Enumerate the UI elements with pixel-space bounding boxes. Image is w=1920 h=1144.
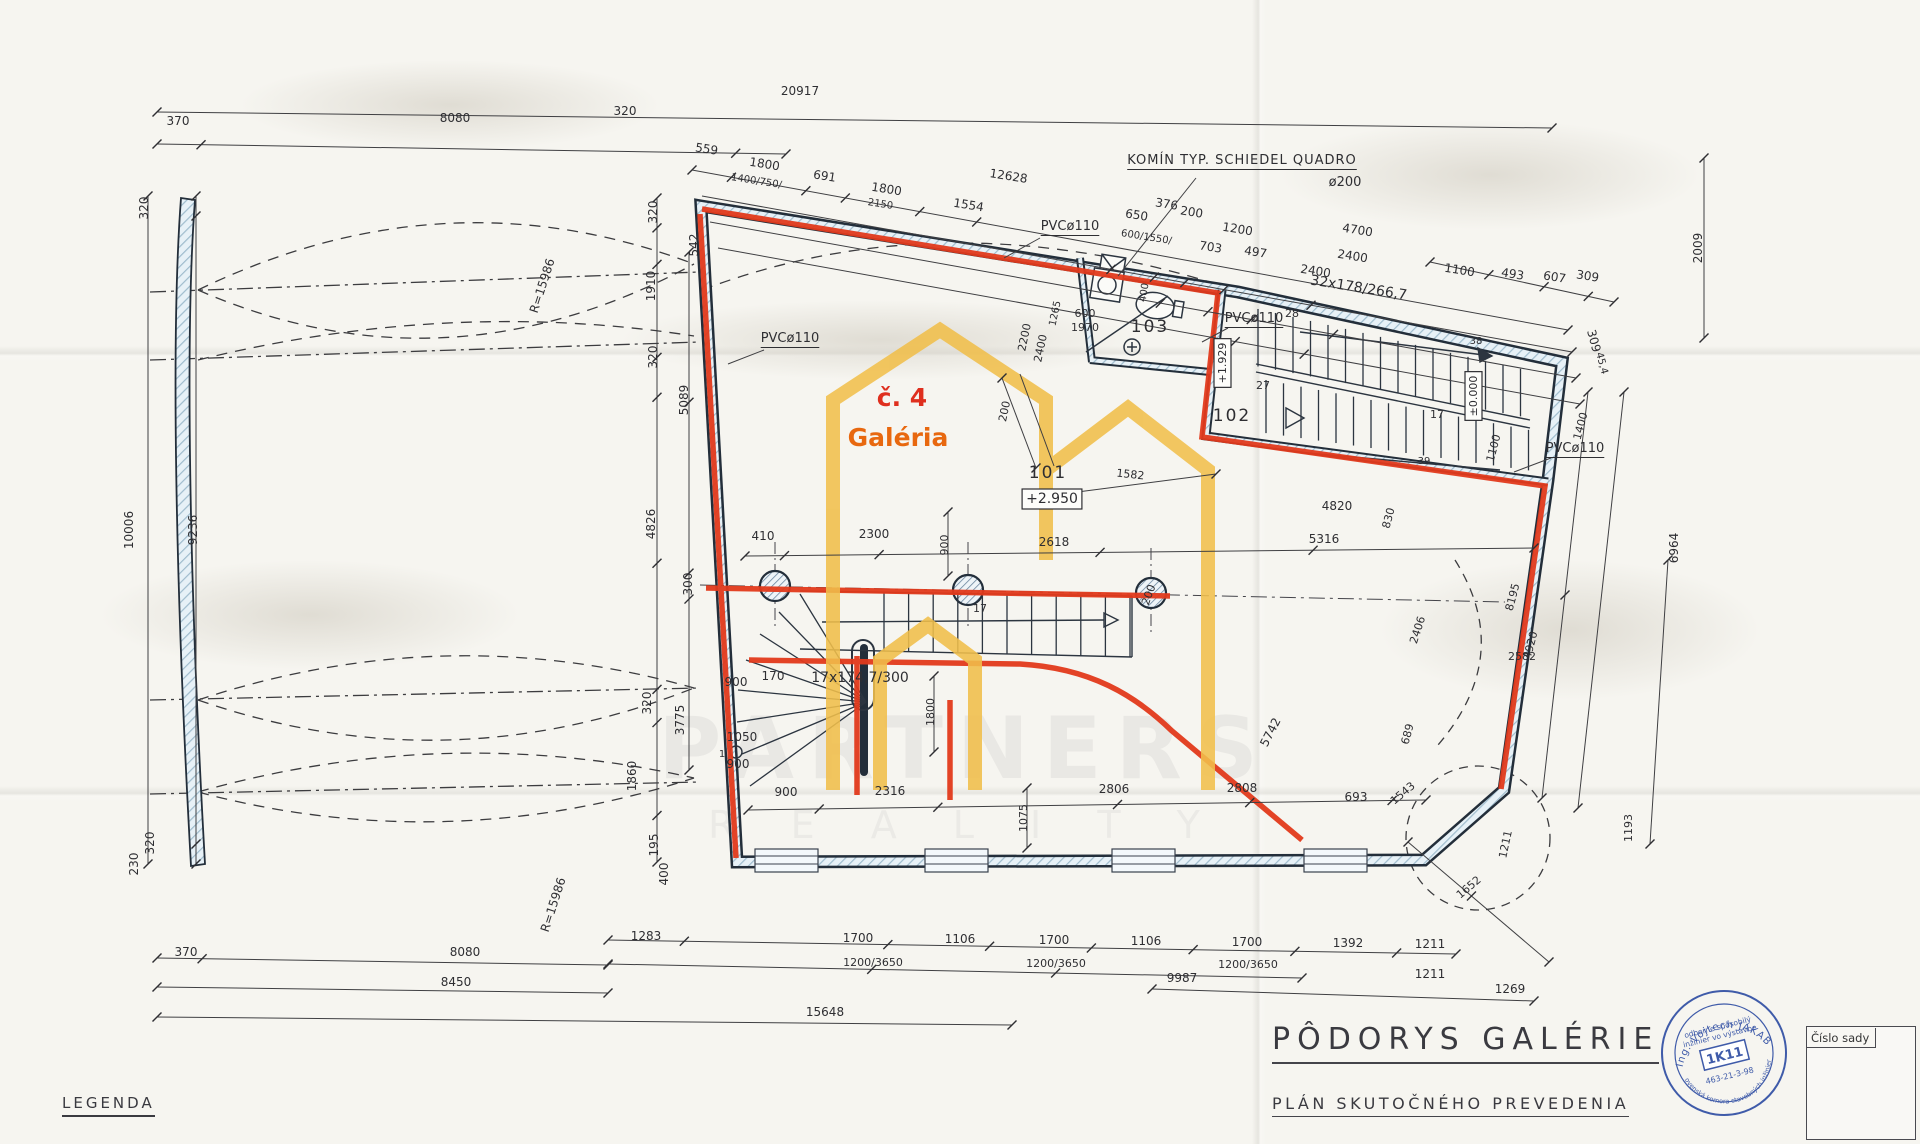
dim-label: 320 bbox=[646, 346, 660, 369]
drawing-sheet: PARTNERS R E A L I T Y bbox=[0, 0, 1920, 1144]
dim-label: 230 bbox=[127, 853, 141, 876]
stair-lower-annotation: 17x174,7/300 bbox=[811, 670, 909, 686]
dim-label: 1211 bbox=[1415, 967, 1446, 981]
dim-label: 1200/3650 bbox=[1026, 957, 1086, 970]
dim-label: 607 bbox=[1542, 268, 1567, 285]
dim-tick bbox=[972, 218, 981, 227]
window bbox=[1112, 849, 1175, 872]
dim-label: 1652 bbox=[1454, 873, 1484, 901]
dim-label: 900 bbox=[725, 675, 748, 689]
dim-label: 410 bbox=[752, 529, 775, 543]
dim-label: 1582 bbox=[1116, 467, 1145, 483]
dim-label: 2618 bbox=[1039, 535, 1070, 549]
dim-tick bbox=[801, 186, 810, 195]
engineer-stamp: Ing. Vojtech JAKAB Slovenská komora stav… bbox=[1649, 978, 1799, 1128]
dim-label: 693 bbox=[1345, 790, 1368, 804]
dim-label: 1211 bbox=[1415, 937, 1446, 951]
dim-label: 370 bbox=[175, 945, 198, 959]
dim-label: 1392 bbox=[1333, 936, 1364, 950]
dim-label: 2406 bbox=[1407, 615, 1428, 646]
dim-tick bbox=[1300, 350, 1309, 359]
dim-label: R=15986 bbox=[527, 257, 558, 315]
dim-label: 400 bbox=[657, 863, 671, 886]
dim-label: 9987 bbox=[1167, 971, 1198, 985]
dim-tick bbox=[1426, 258, 1435, 267]
dim-label: 2316 bbox=[875, 784, 906, 798]
dim-label: 1100 bbox=[1443, 261, 1475, 280]
window bbox=[1304, 849, 1367, 872]
dim-label: 320 bbox=[143, 832, 157, 855]
dim-label: 559 bbox=[694, 140, 719, 157]
pipe-annotation: PVCø110 bbox=[1546, 441, 1605, 456]
dim-line bbox=[1650, 560, 1668, 844]
dim-label: 600/1550/ bbox=[1120, 228, 1173, 247]
dim-label: 1970 bbox=[1071, 321, 1099, 334]
dim-label: 1106 bbox=[1131, 934, 1162, 948]
dim-label: 195 bbox=[647, 834, 661, 857]
dim-label: 39 bbox=[1418, 456, 1431, 467]
dim-tick bbox=[688, 166, 697, 175]
window bbox=[755, 849, 818, 872]
dim-label: 5316 bbox=[1309, 532, 1340, 546]
pipe-annotation: PVCø110 bbox=[761, 331, 820, 346]
dim-label: 1106 bbox=[945, 932, 976, 946]
stair-direction-triangle bbox=[1104, 613, 1118, 627]
dim-label: 1200/3650 bbox=[1218, 958, 1278, 971]
overall-width-dim: 20917 bbox=[781, 84, 819, 98]
dim-line bbox=[692, 170, 1568, 330]
dim-label: 4820 bbox=[1322, 499, 1353, 513]
dim-label: 15648 bbox=[806, 1005, 844, 1019]
dim-label: 309 bbox=[1575, 267, 1600, 284]
dim-label: 1269 bbox=[1495, 982, 1526, 996]
dim-label: 200 bbox=[1179, 203, 1204, 220]
dim-line bbox=[1152, 989, 1534, 1001]
dim-label: 5089 bbox=[677, 385, 691, 416]
dim-label: 8080 bbox=[450, 945, 481, 959]
dim-label: 1050 bbox=[727, 730, 758, 744]
dim-label: 600 bbox=[1075, 307, 1096, 320]
set-number-label: Číslo sady bbox=[1807, 1028, 1876, 1048]
dim-label: 1 bbox=[719, 749, 725, 760]
dim-label: 320 bbox=[137, 197, 151, 220]
dim-tick bbox=[1610, 298, 1619, 307]
dim-label: 17 bbox=[973, 602, 987, 615]
dim-label: 1211 bbox=[1496, 829, 1515, 859]
unit-name: Galéria bbox=[848, 423, 949, 452]
unit-number: č. 4 bbox=[877, 383, 927, 412]
legend-heading: LEGENDA bbox=[62, 1094, 155, 1117]
dim-tick bbox=[1329, 330, 1338, 339]
dim-label: 493 bbox=[1500, 265, 1525, 282]
dim-line bbox=[608, 940, 1456, 954]
dim-label: R=15986 bbox=[538, 876, 569, 934]
dim-label: 2400 bbox=[1031, 333, 1050, 363]
dim-label: 4826 bbox=[644, 509, 658, 540]
dim-tick bbox=[1564, 326, 1573, 335]
dim-label: 10006 bbox=[122, 511, 136, 549]
dim-label: 1800 bbox=[870, 180, 902, 199]
dim-label: 320 bbox=[646, 201, 660, 224]
dim-label: 320 bbox=[614, 104, 637, 118]
dim-label: 2808 bbox=[1227, 781, 1258, 795]
dim-label: 2806 bbox=[1099, 782, 1130, 796]
dim-label: 320 bbox=[640, 692, 654, 715]
dim-label: 200 bbox=[996, 400, 1013, 423]
elevation-marker: +2.950 bbox=[1026, 491, 1078, 507]
dim-label: 1700 bbox=[1039, 933, 1070, 947]
dim-label: 45,4 bbox=[1593, 351, 1609, 375]
dim-label: 8195 bbox=[1503, 582, 1523, 612]
room-number-103: 103 bbox=[1131, 317, 1169, 337]
dim-tick bbox=[1540, 282, 1549, 291]
dim-label: 900 bbox=[938, 535, 951, 556]
dim-label: 376 bbox=[1154, 195, 1179, 212]
dim-tick bbox=[841, 194, 850, 203]
dim-label: 2300 bbox=[859, 527, 890, 541]
watermark-word: PARTNERS bbox=[658, 699, 1272, 799]
window bbox=[925, 849, 988, 872]
dim-label: 1860 bbox=[625, 761, 639, 792]
chimney-annotation: KOMÍN TYP. SCHIEDEL QUADRO bbox=[1127, 152, 1357, 168]
dim-tick bbox=[915, 207, 924, 216]
dim-label: 309 bbox=[1584, 328, 1603, 354]
dim-line bbox=[157, 144, 786, 154]
dim-label: 703 bbox=[1198, 238, 1223, 255]
dim-label: 1075 bbox=[1017, 804, 1030, 832]
dim-label: 900 bbox=[775, 785, 798, 799]
dim-label: 6964 bbox=[1667, 533, 1681, 564]
dimension-labels: 20917370808032055918001400/750/691180021… bbox=[122, 84, 1705, 1019]
dim-line bbox=[157, 1017, 1012, 1025]
dim-line bbox=[157, 112, 1552, 128]
dim-label: 830 bbox=[1380, 506, 1398, 530]
dim-label: 27 bbox=[1256, 379, 1270, 392]
dim-label: 1554 bbox=[952, 196, 984, 215]
dim-label: 1910 bbox=[644, 271, 658, 302]
dim-label: 2400 bbox=[1336, 247, 1368, 266]
ghost-watermark: PARTNERS R E A L I T Y bbox=[658, 699, 1272, 847]
dim-label: 1800 bbox=[748, 155, 780, 174]
dim-label: 1193 bbox=[1622, 814, 1635, 842]
dim-label: 1400 bbox=[1571, 411, 1591, 441]
dim-line bbox=[608, 964, 1302, 978]
dim-label: 2200 bbox=[1015, 322, 1034, 352]
dim-line bbox=[157, 987, 608, 993]
dim-label: ø200 bbox=[1329, 175, 1362, 190]
dim-label: 370 bbox=[167, 114, 190, 128]
dim-label: 542 bbox=[687, 234, 701, 257]
dim-label: 689 bbox=[1399, 722, 1417, 746]
room-number-101: 101 bbox=[1029, 463, 1067, 483]
dim-label: 2009 bbox=[1691, 233, 1705, 264]
dim-label: 1543 bbox=[1388, 779, 1418, 807]
dim-label: 1400/750/ bbox=[730, 172, 783, 191]
dim-label: 38 bbox=[1470, 336, 1483, 347]
pipe-annotation: PVCø110 bbox=[1225, 311, 1284, 326]
drawing-title: PÔDORYS GALÉRIE bbox=[1272, 1022, 1659, 1064]
elevation-marker: ±0.000 bbox=[1467, 376, 1480, 417]
stair-upper-annotation: 32x178/266,7 bbox=[1309, 273, 1408, 304]
dim-line bbox=[745, 548, 1534, 556]
dim-line bbox=[728, 350, 764, 364]
dim-label: 170 bbox=[762, 669, 785, 683]
winder-tread bbox=[760, 634, 866, 702]
dim-label: 900 bbox=[727, 757, 750, 771]
dim-label: 1800 bbox=[924, 698, 937, 726]
drawing-subtitle: PLÁN SKUTOČNÉHO PREVEDENIA bbox=[1272, 1094, 1629, 1117]
room-number-102: 102 bbox=[1213, 406, 1251, 426]
dim-tick bbox=[1584, 292, 1593, 301]
dim-label: 1100 bbox=[1484, 433, 1504, 463]
dim-line bbox=[157, 958, 608, 965]
dim-label: 1265 bbox=[1048, 300, 1064, 327]
dim-label: 650 bbox=[1124, 206, 1149, 223]
floor-plan-canvas: PARTNERS R E A L I T Y bbox=[0, 0, 1920, 1144]
dim-tick bbox=[1484, 270, 1493, 279]
dim-label: 17 bbox=[1430, 408, 1444, 421]
dim-tick bbox=[1576, 400, 1585, 409]
dim-tick bbox=[1231, 337, 1240, 346]
elevation-marker: +1.929 bbox=[1216, 343, 1229, 384]
dim-line bbox=[1118, 178, 1196, 276]
dim-label: 8080 bbox=[440, 111, 471, 125]
dim-label: 4700 bbox=[1341, 221, 1373, 240]
set-number-box: Číslo sady bbox=[1806, 1026, 1916, 1140]
dim-label: 1283 bbox=[631, 929, 662, 943]
dim-label: 1700 bbox=[843, 931, 874, 945]
dim-tick bbox=[1572, 374, 1581, 383]
dim-label: 9236 bbox=[186, 515, 200, 546]
dim-label: 8450 bbox=[441, 975, 472, 989]
dim-label: 28 bbox=[1285, 307, 1299, 320]
dim-label: 691 bbox=[812, 167, 837, 184]
dim-tick bbox=[1203, 307, 1212, 316]
dim-label: 3775 bbox=[673, 705, 687, 736]
dim-label: 497 bbox=[1243, 243, 1268, 260]
dim-label: 1200 bbox=[1221, 220, 1253, 239]
dim-label: 1700 bbox=[1232, 935, 1263, 949]
dim-label: 12628 bbox=[989, 166, 1029, 186]
dim-tick bbox=[1568, 348, 1577, 357]
dim-label: 300 bbox=[681, 573, 695, 596]
dim-label: 1200/3650 bbox=[843, 956, 903, 969]
pipe-annotation: PVCø110 bbox=[1041, 219, 1100, 234]
dim-label: 2150 bbox=[867, 197, 894, 212]
